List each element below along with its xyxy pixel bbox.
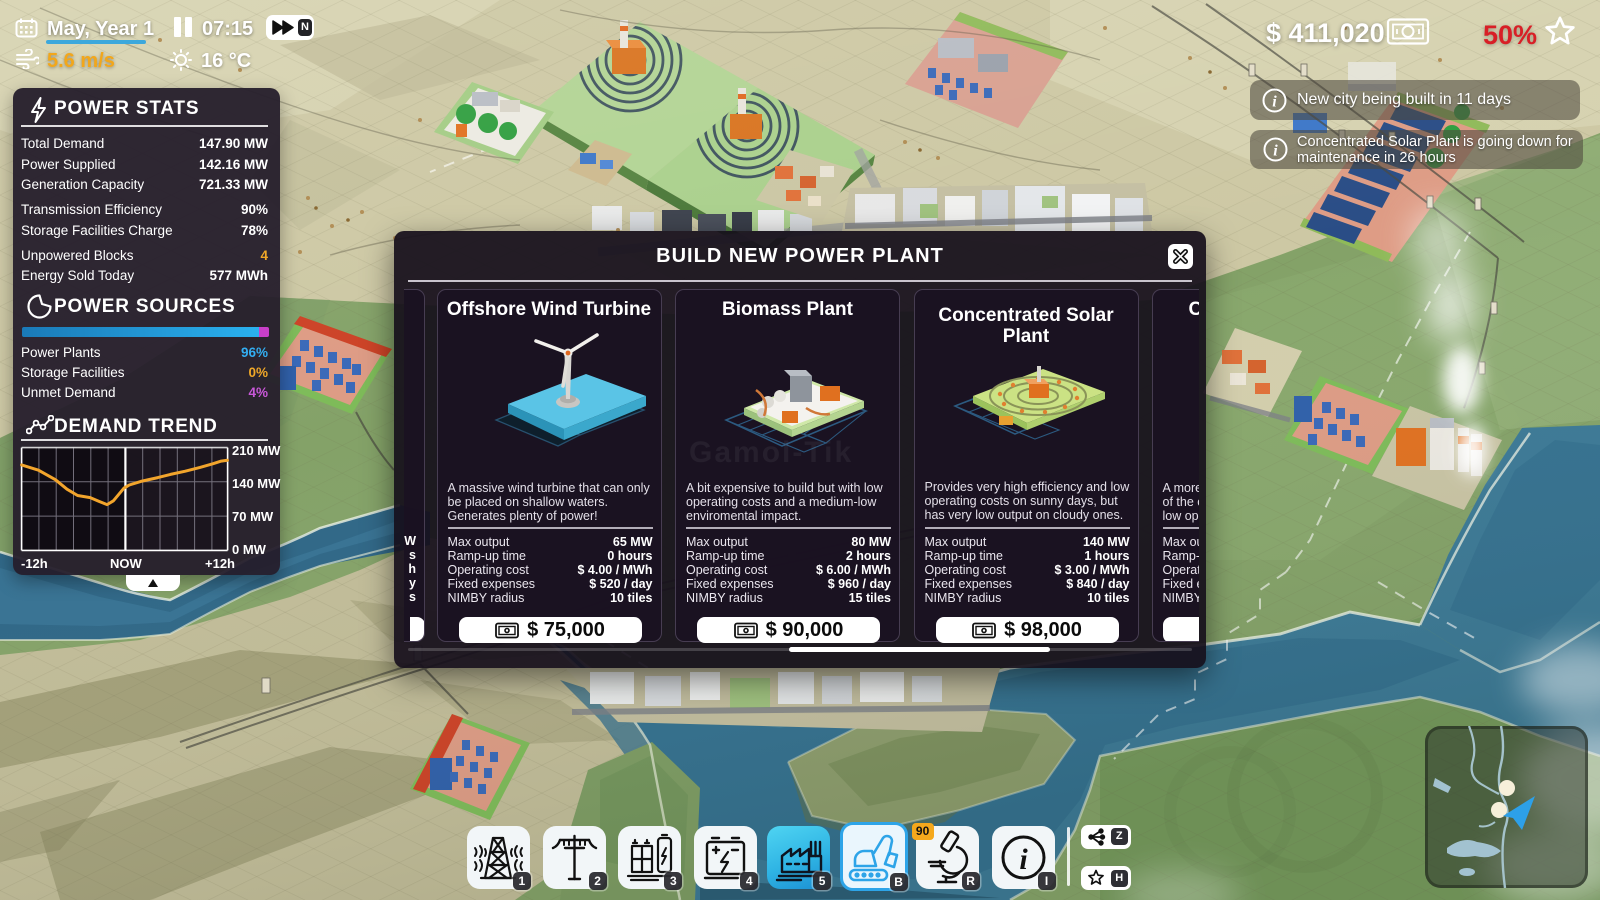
svg-text:i: i bbox=[1019, 843, 1028, 876]
